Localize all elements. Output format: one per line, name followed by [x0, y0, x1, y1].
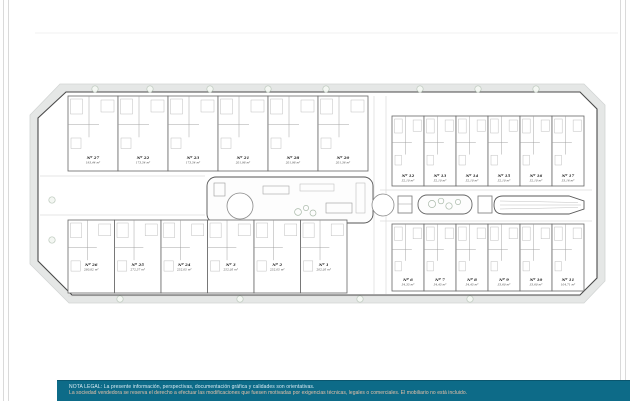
- unit-area-label: 280,82 m²: [83, 268, 99, 272]
- unit-number-label: Nº 21: [236, 155, 250, 160]
- unit-area-label: 52,10 m²: [402, 179, 416, 183]
- jacuzzi-pool-icon: [372, 194, 394, 216]
- unit-number-label: Nº 26: [84, 262, 98, 267]
- unit-area-label: 52,10 m²: [434, 179, 448, 183]
- unit-number-label: Nº 13: [433, 173, 447, 178]
- unit-cell: Nº 1252,10 m²: [392, 116, 424, 186]
- unit-number-label: Nº 15: [497, 173, 511, 178]
- unit-area-label: 54,35 m²: [402, 283, 416, 287]
- unit-number-label: Nº 8: [466, 277, 477, 282]
- unit-area-label: 201,36 m²: [335, 161, 351, 165]
- unit-number-label: Nº 25: [130, 262, 144, 267]
- unit-cell: Nº 1652,10 m²: [520, 116, 552, 186]
- unit-number-label: Nº 2: [271, 262, 282, 267]
- unit-area-label: 33,60 m²: [498, 283, 512, 287]
- legal-note-banner: NOTA LEGAL: La presente información, per…: [57, 380, 630, 401]
- unit-number-label: Nº 10: [529, 277, 543, 282]
- courtyard-left: [207, 177, 373, 223]
- unit-number-label: Nº 17: [561, 173, 575, 178]
- unit-cell: Nº 933,60 m²: [488, 224, 520, 291]
- planter-island: [418, 195, 472, 214]
- unit-number-label: Nº 14: [465, 173, 479, 178]
- unit-area-label: 104,71 m²: [561, 283, 576, 287]
- unit-area-label: 54,45 m²: [434, 283, 448, 287]
- unit-cell: Nº 754,45 m²: [424, 224, 456, 291]
- unit-area-label: 52,10 m²: [466, 179, 480, 183]
- unit-cell: Nº 20201,36 m²: [318, 96, 368, 171]
- unit-cell: Nº 1552,10 m²: [488, 116, 520, 186]
- unit-number-label: Nº 23: [186, 155, 200, 160]
- unit-number-label: Nº 27: [86, 155, 100, 160]
- unit-area-label: 54,45 m²: [466, 283, 480, 287]
- unit-number-label: Nº 16: [529, 173, 543, 178]
- unit-area-label: 252,05 m²: [176, 268, 192, 272]
- unit-cell: Nº 25272,57 m²: [115, 220, 162, 293]
- unit-cell: Nº 654,35 m²: [392, 224, 424, 291]
- courtyard-right: [372, 194, 584, 216]
- unit-number-label: Nº 20: [336, 155, 350, 160]
- unit-area-label: 53,16 m²: [562, 179, 576, 183]
- legal-note-line2: La sociedad vendedora se reserva el dere…: [69, 390, 630, 396]
- unit-cell: Nº 1753,16 m²: [552, 116, 584, 186]
- unit-cell: Nº 21201,98 m²: [218, 96, 268, 171]
- unit-number-label: Nº 9: [498, 277, 509, 282]
- unit-cell: Nº 24252,05 m²: [161, 220, 208, 293]
- unit-area-label: 272,57 m²: [130, 268, 146, 272]
- unit-area-label: 33,60 m²: [530, 283, 544, 287]
- site-plan-drawing: Nº 27193,44 m²Nº 22173,54 m²Nº 23173,54 …: [0, 0, 630, 401]
- unit-area-label: 52,10 m²: [530, 179, 544, 183]
- unit-number-label: Nº 24: [177, 262, 191, 267]
- shower-structure: [398, 196, 412, 213]
- unit-area-label: 202,05 m²: [316, 268, 332, 272]
- unit-number-label: Nº 6: [402, 277, 413, 282]
- unit-area-label: 52,10 m²: [498, 179, 512, 183]
- unit-number-label: Nº 28: [286, 155, 300, 160]
- unit-area-label: 252,05 m²: [223, 268, 239, 272]
- unit-area-label: 193,44 m²: [86, 161, 101, 165]
- unit-cell: Nº 1202,05 m²: [301, 220, 348, 293]
- unit-area-label: 201,98 m²: [285, 161, 301, 165]
- unit-cell: Nº 23173,54 m²: [168, 96, 218, 171]
- round-pool-icon: [227, 193, 253, 219]
- unit-number-label: Nº 12: [401, 173, 415, 178]
- unit-cell: Nº 22173,54 m²: [118, 96, 168, 171]
- unit-cell: Nº 1352,10 m²: [424, 116, 456, 186]
- unit-number-label: Nº 7: [434, 277, 445, 282]
- unit-cell: Nº 11104,71 m²: [552, 224, 584, 291]
- unit-number-label: Nº 22: [136, 155, 150, 160]
- unit-cell: Nº 27193,44 m²: [68, 96, 118, 171]
- unit-area-label: 173,54 m²: [136, 161, 151, 165]
- unit-cell: Nº 26280,82 m²: [68, 220, 115, 293]
- unit-area-label: 201,98 m²: [235, 161, 251, 165]
- unit-number-label: Nº 11: [561, 277, 575, 282]
- pool-access-structure: [478, 196, 492, 213]
- unit-cell: Nº 28201,98 m²: [268, 96, 318, 171]
- unit-number-label: Nº 3: [225, 262, 236, 267]
- unit-cell: Nº 1452,10 m²: [456, 116, 488, 186]
- unit-area-label: 173,54 m²: [186, 161, 201, 165]
- unit-number-label: Nº 1: [318, 262, 329, 267]
- unit-cell: Nº 854,45 m²: [456, 224, 488, 291]
- unit-area-label: 252,05 m²: [269, 268, 285, 272]
- unit-cell: Nº 1033,60 m²: [520, 224, 552, 291]
- unit-cell: Nº 2252,05 m²: [254, 220, 301, 293]
- unit-cell: Nº 3252,05 m²: [208, 220, 255, 293]
